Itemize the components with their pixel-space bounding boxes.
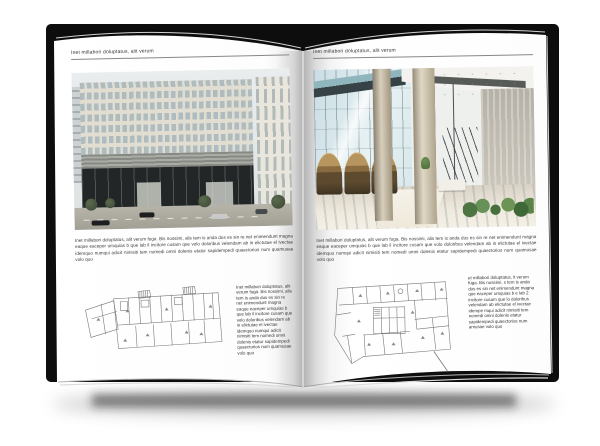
lobby-interior-photo bbox=[313, 66, 536, 230]
neighbor-building bbox=[256, 76, 293, 205]
office-building-exterior-photo bbox=[71, 68, 292, 230]
left-plan-section: Inet millabori doluptatus, alit verum fu… bbox=[76, 281, 296, 372]
car bbox=[140, 212, 155, 217]
room-markers bbox=[96, 304, 213, 342]
stone-wall bbox=[481, 88, 536, 195]
car bbox=[92, 220, 110, 225]
book-mockup-scene: Inet millabori doluptatus, alit verum In… bbox=[0, 0, 600, 446]
room-markers bbox=[356, 287, 444, 345]
stair-railing bbox=[442, 127, 478, 182]
indoor-plant bbox=[420, 157, 429, 169]
tree bbox=[198, 195, 211, 207]
planter-greenery bbox=[463, 194, 534, 219]
lobby-column bbox=[373, 68, 393, 220]
tree bbox=[105, 198, 115, 208]
lobby-column bbox=[412, 67, 437, 224]
left-page-content: Inet millabori doluptatus, alit verum In… bbox=[71, 45, 296, 371]
car bbox=[255, 208, 267, 213]
right-plan-caption: et millabori doluptatus, it verum fuga. … bbox=[468, 274, 535, 330]
right-page-content: Inet millabori doluptatus, alit verum In… bbox=[313, 45, 539, 380]
left-floor-plan bbox=[76, 282, 230, 371]
tree bbox=[85, 198, 97, 210]
right-floor-plan bbox=[317, 272, 461, 380]
storefront bbox=[137, 182, 162, 207]
reception-desk bbox=[438, 179, 465, 191]
left-plan-caption: Inet millabori doluptatus, alit verum fu… bbox=[236, 283, 293, 356]
car bbox=[212, 213, 228, 218]
right-body-paragraph: Inet millabori doluptatus, alit verum fu… bbox=[316, 234, 536, 264]
left-body-paragraph: Inet millabori doluptatus, alit verum fu… bbox=[75, 233, 293, 264]
book-shadow bbox=[52, 392, 556, 416]
right-plan-section: et millabori doluptatus, it verum fuga. … bbox=[317, 271, 539, 381]
building-upper-facade bbox=[80, 79, 253, 155]
